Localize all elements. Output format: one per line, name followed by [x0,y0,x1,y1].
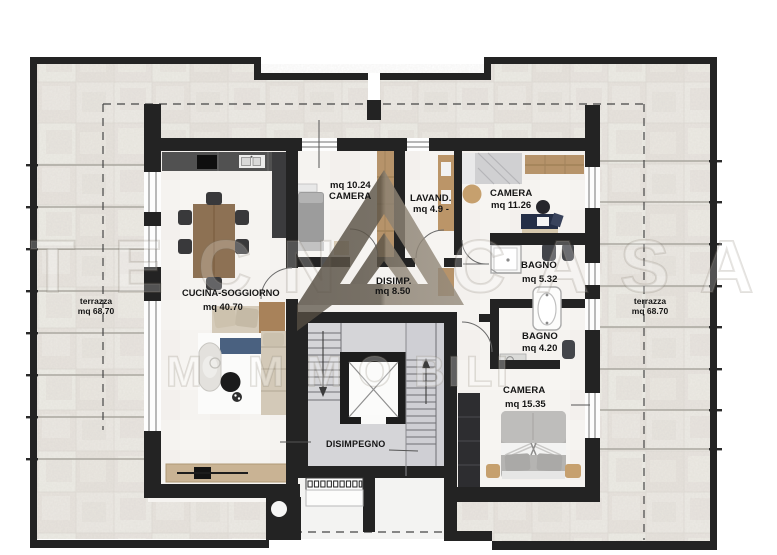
svg-text:DISIMPEGNO: DISIMPEGNO [326,439,386,449]
svg-text:mq 40.70: mq 40.70 [203,302,243,312]
svg-text:A: A [700,225,753,308]
svg-text:mq 68.70: mq 68.70 [78,306,115,316]
svg-text:mq 68.70: mq 68.70 [632,306,669,316]
svg-text:L: L [466,348,492,396]
svg-text:mq 5.32: mq 5.32 [522,274,557,285]
svg-text:M: M [248,348,284,396]
svg-text:mq 15.35: mq 15.35 [505,399,546,410]
svg-text:T: T [30,225,75,308]
svg-text:CUCINA-SOGGIORNO: CUCINA-SOGGIORNO [182,288,280,298]
svg-text:CAMERA: CAMERA [503,385,545,396]
svg-text:BAGNO: BAGNO [522,331,558,342]
svg-text:mq 8.50: mq 8.50 [375,286,410,297]
svg-text:BAGNO: BAGNO [521,260,557,271]
svg-text:O: O [358,348,391,396]
svg-text:C: C [452,225,505,308]
svg-text:LAVAND.: LAVAND. [410,193,452,204]
svg-text:M: M [166,348,202,396]
svg-text:mq 11.26: mq 11.26 [491,200,531,211]
svg-text:CAMERA: CAMERA [329,191,371,202]
svg-text:M: M [306,348,342,396]
svg-text:terrazza: terrazza [80,296,112,306]
svg-text:terrazza: terrazza [634,296,666,306]
svg-text:I: I [448,348,460,396]
svg-text:mq 10.24: mq 10.24 [330,180,371,191]
svg-text:E: E [114,225,163,308]
svg-text:B: B [414,348,445,396]
svg-text:mq 4.20: mq 4.20 [522,343,557,354]
svg-text:CAMERA: CAMERA [490,188,532,199]
svg-text:mq 4.9 -: mq 4.9 - [413,204,449,215]
